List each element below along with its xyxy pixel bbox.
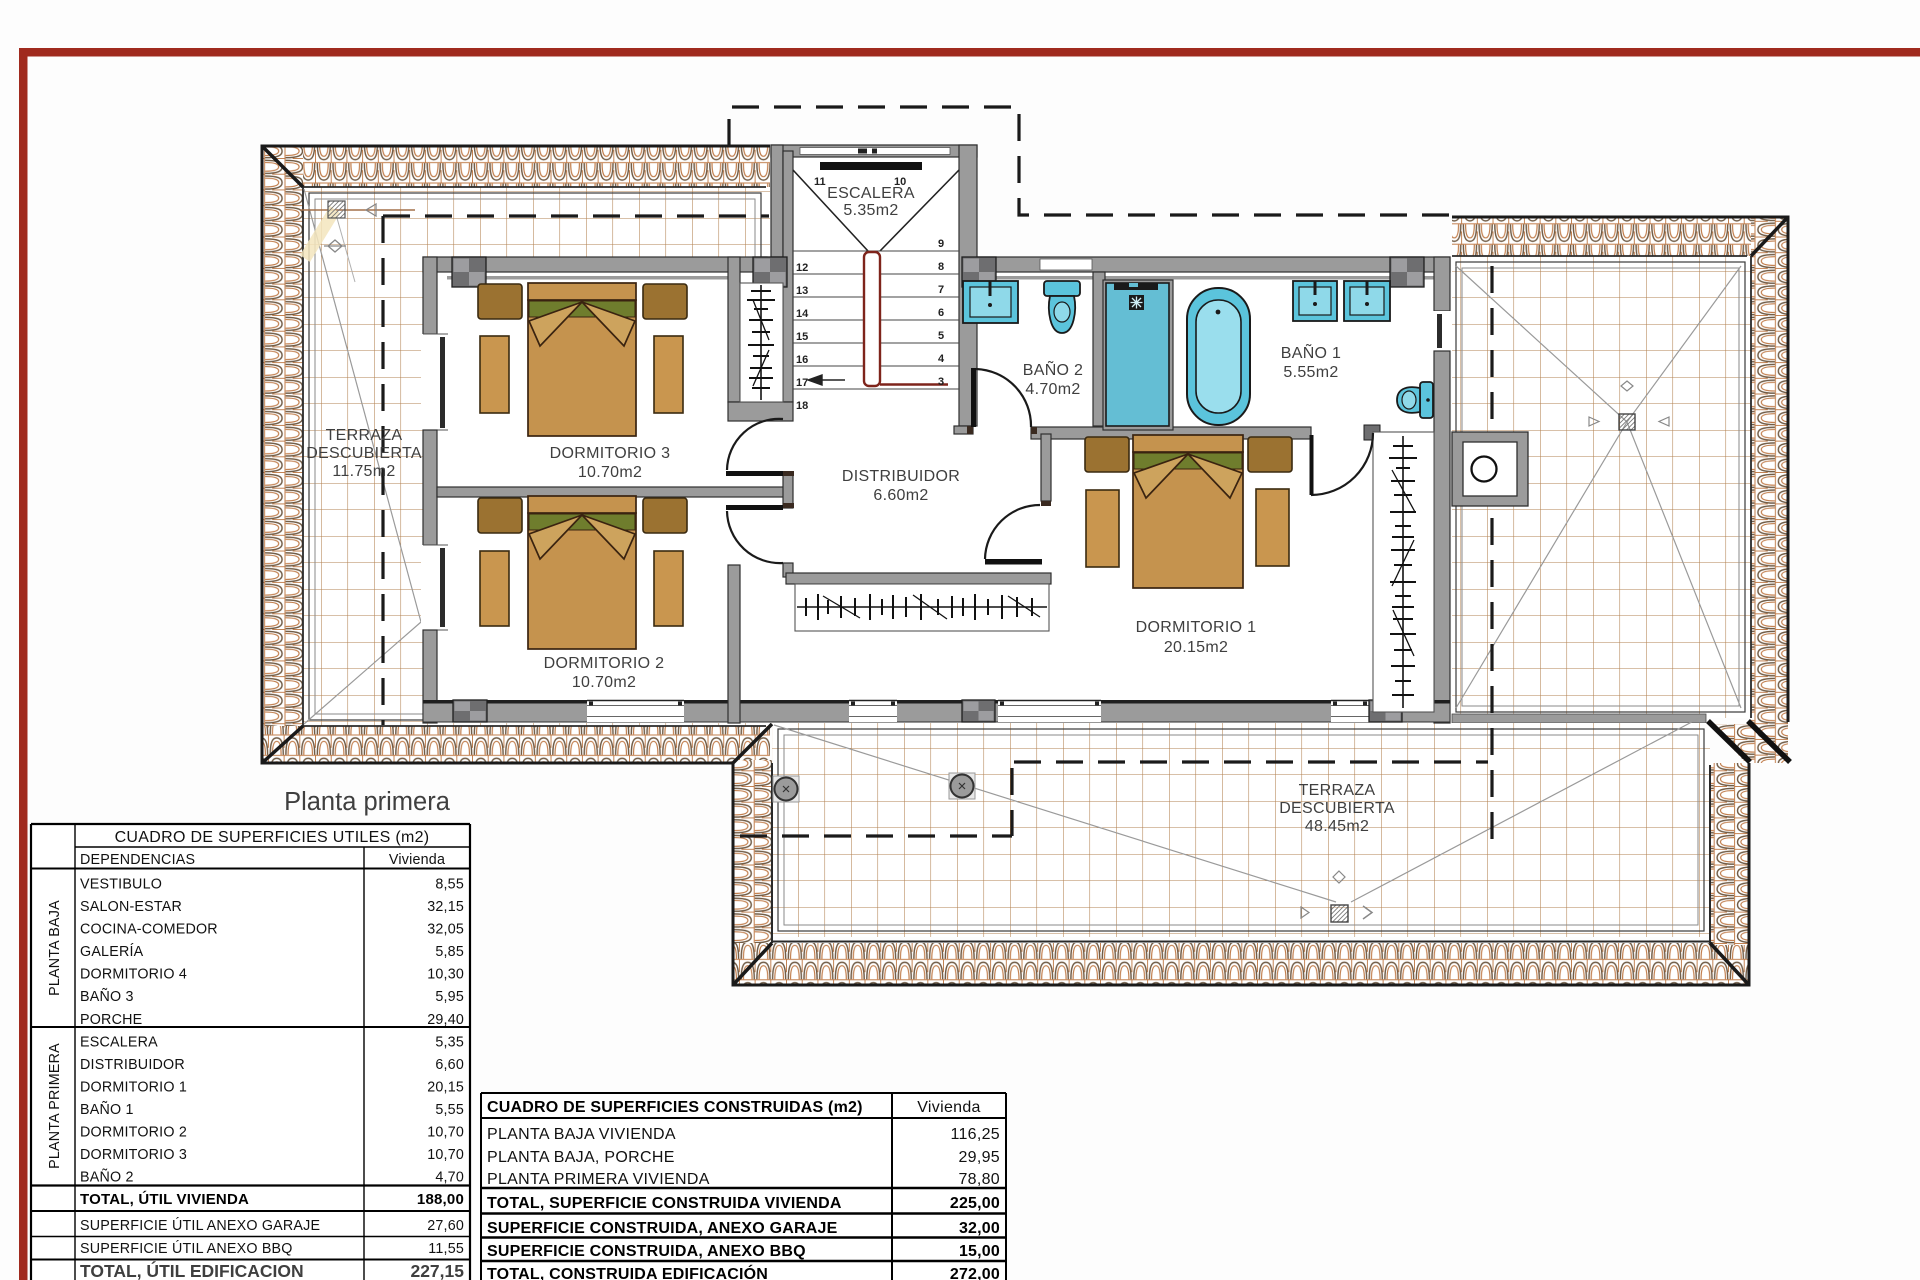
svg-text:29,95: 29,95 [958, 1149, 1000, 1166]
svg-text:PLANTA PRIMERA: PLANTA PRIMERA [47, 1043, 63, 1169]
svg-text:Planta primera: Planta primera [284, 788, 451, 816]
svg-text:5.35m2: 5.35m2 [843, 202, 898, 219]
svg-text:DORMITORIO 3: DORMITORIO 3 [550, 445, 671, 462]
svg-text:5,85: 5,85 [435, 944, 464, 960]
svg-text:78,80: 78,80 [958, 1171, 1000, 1188]
svg-text:8,55: 8,55 [435, 877, 464, 893]
svg-text:14: 14 [796, 308, 809, 320]
svg-text:DORMITORIO 4: DORMITORIO 4 [80, 967, 187, 983]
svg-text:11.75m2: 11.75m2 [332, 463, 395, 480]
svg-text:29,40: 29,40 [427, 1012, 464, 1028]
svg-text:20.15m2: 20.15m2 [1164, 639, 1228, 656]
svg-text:6: 6 [938, 307, 944, 319]
svg-text:CUADRO DE SUPERFICIES CONSTRUI: CUADRO DE SUPERFICIES CONSTRUIDAS (m2) [487, 1099, 863, 1116]
svg-text:32,05: 32,05 [427, 922, 464, 938]
svg-text:116,25: 116,25 [950, 1126, 1000, 1143]
svg-text:TOTAL, ÚTIL EDIFICACION: TOTAL, ÚTIL EDIFICACION [80, 1260, 304, 1280]
svg-text:Vivienda: Vivienda [389, 852, 445, 868]
svg-text:9: 9 [938, 238, 944, 250]
svg-text:SALON-ESTAR: SALON-ESTAR [80, 899, 182, 915]
svg-text:272,00: 272,00 [950, 1266, 1000, 1280]
svg-text:ESCALERA: ESCALERA [827, 185, 915, 202]
svg-text:5,55: 5,55 [435, 1102, 464, 1118]
svg-text:DEPENDENCIAS: DEPENDENCIAS [80, 852, 195, 868]
svg-text:4.70m2: 4.70m2 [1025, 381, 1080, 398]
svg-text:SUPERFICIE ÚTIL ANEXO GARAJE: SUPERFICIE ÚTIL ANEXO GARAJE [80, 1217, 320, 1234]
svg-text:32,15: 32,15 [427, 899, 464, 915]
svg-text:TERRAZA: TERRAZA [326, 427, 403, 444]
svg-text:VESTIBULO: VESTIBULO [80, 877, 162, 893]
svg-text:6.60m2: 6.60m2 [873, 487, 928, 504]
svg-text:TOTAL, CONSTRUIDA EDIFICACIÓN: TOTAL, CONSTRUIDA EDIFICACIÓN [487, 1264, 768, 1280]
svg-text:PLANTA PRIMERA VIVIENDA: PLANTA PRIMERA VIVIENDA [487, 1171, 710, 1188]
svg-text:TOTAL, SUPERFICIE CONSTRUIDA V: TOTAL, SUPERFICIE CONSTRUIDA VIVIENDA [487, 1195, 842, 1212]
svg-text:5: 5 [938, 330, 944, 342]
svg-text:12: 12 [796, 262, 808, 274]
svg-text:17: 17 [796, 377, 808, 389]
svg-text:48.45m2: 48.45m2 [1305, 818, 1369, 835]
svg-text:ESCALERA: ESCALERA [80, 1034, 158, 1050]
svg-text:TOTAL, ÚTIL VIVIENDA: TOTAL, ÚTIL VIVIENDA [80, 1190, 249, 1208]
svg-text:18: 18 [796, 400, 808, 412]
svg-text:DORMITORIO 2: DORMITORIO 2 [80, 1125, 187, 1141]
svg-text:DORMITORIO 2: DORMITORIO 2 [544, 655, 665, 672]
svg-text:3: 3 [938, 376, 944, 388]
svg-text:BAÑO 1: BAÑO 1 [1281, 342, 1342, 362]
svg-text:10.70m2: 10.70m2 [572, 674, 636, 691]
svg-text:DISTRIBUIDOR: DISTRIBUIDOR [80, 1057, 185, 1073]
svg-text:PLANTA BAJA VIVIENDA: PLANTA BAJA VIVIENDA [487, 1126, 676, 1143]
svg-text:SUPERFICIE CONSTRUIDA, ANEXO B: SUPERFICIE CONSTRUIDA, ANEXO BBQ [487, 1243, 806, 1260]
svg-text:10,70: 10,70 [427, 1125, 464, 1141]
svg-text:13: 13 [796, 285, 808, 297]
svg-text:PLANTA BAJA: PLANTA BAJA [47, 900, 63, 996]
svg-text:5.55m2: 5.55m2 [1283, 364, 1338, 381]
svg-text:BAÑO 2: BAÑO 2 [80, 1169, 134, 1186]
svg-text:11: 11 [814, 176, 826, 188]
svg-text:BAÑO 3: BAÑO 3 [80, 988, 134, 1005]
svg-text:8: 8 [938, 261, 944, 273]
svg-text:CUADRO DE SUPERFICIES UTILES (: CUADRO DE SUPERFICIES UTILES (m2) [115, 829, 430, 846]
svg-text:16: 16 [796, 354, 808, 366]
svg-text:6,60: 6,60 [435, 1057, 464, 1073]
svg-text:PORCHE: PORCHE [80, 1012, 142, 1028]
svg-text:SUPERFICIE ÚTIL ANEXO BBQ: SUPERFICIE ÚTIL ANEXO BBQ [80, 1240, 293, 1257]
svg-text:32,00: 32,00 [959, 1220, 1000, 1237]
svg-text:10,30: 10,30 [427, 967, 464, 983]
svg-text:Vivienda: Vivienda [917, 1099, 981, 1116]
svg-text:DORMITORIO 1: DORMITORIO 1 [1136, 619, 1257, 636]
svg-text:DESCUBIERTA: DESCUBIERTA [306, 445, 422, 462]
svg-text:BAÑO 1: BAÑO 1 [80, 1101, 134, 1118]
svg-text:5,95: 5,95 [435, 989, 464, 1005]
svg-text:10.70m2: 10.70m2 [578, 464, 642, 481]
svg-text:DISTRIBUIDOR: DISTRIBUIDOR [842, 468, 960, 485]
svg-text:11,55: 11,55 [428, 1241, 464, 1257]
svg-text:15,00: 15,00 [959, 1243, 1000, 1260]
svg-text:PLANTA BAJA, PORCHE: PLANTA BAJA, PORCHE [487, 1149, 675, 1166]
svg-text:4,70: 4,70 [435, 1170, 464, 1186]
svg-text:4: 4 [938, 353, 945, 365]
svg-text:27,60: 27,60 [427, 1218, 464, 1234]
svg-text:SUPERFICIE CONSTRUIDA, ANEXO G: SUPERFICIE CONSTRUIDA, ANEXO GARAJE [487, 1220, 838, 1237]
svg-text:DESCUBIERTA: DESCUBIERTA [1279, 800, 1395, 817]
svg-text:GALERÍA: GALERÍA [80, 943, 144, 960]
svg-text:20,15: 20,15 [427, 1079, 464, 1095]
svg-text:COCINA-COMEDOR: COCINA-COMEDOR [80, 922, 218, 938]
svg-text:7: 7 [938, 284, 944, 296]
svg-text:DORMITORIO 3: DORMITORIO 3 [80, 1147, 187, 1163]
svg-text:227,15: 227,15 [410, 1261, 464, 1280]
svg-text:188,00: 188,00 [417, 1191, 464, 1208]
svg-text:DORMITORIO 1: DORMITORIO 1 [80, 1079, 187, 1095]
svg-text:225,00: 225,00 [950, 1195, 1000, 1212]
svg-text:5,35: 5,35 [435, 1034, 464, 1050]
svg-text:15: 15 [796, 331, 808, 343]
svg-text:BAÑO 2: BAÑO 2 [1023, 359, 1084, 379]
svg-text:10,70: 10,70 [427, 1147, 464, 1163]
svg-text:TERRAZA: TERRAZA [1299, 782, 1376, 799]
